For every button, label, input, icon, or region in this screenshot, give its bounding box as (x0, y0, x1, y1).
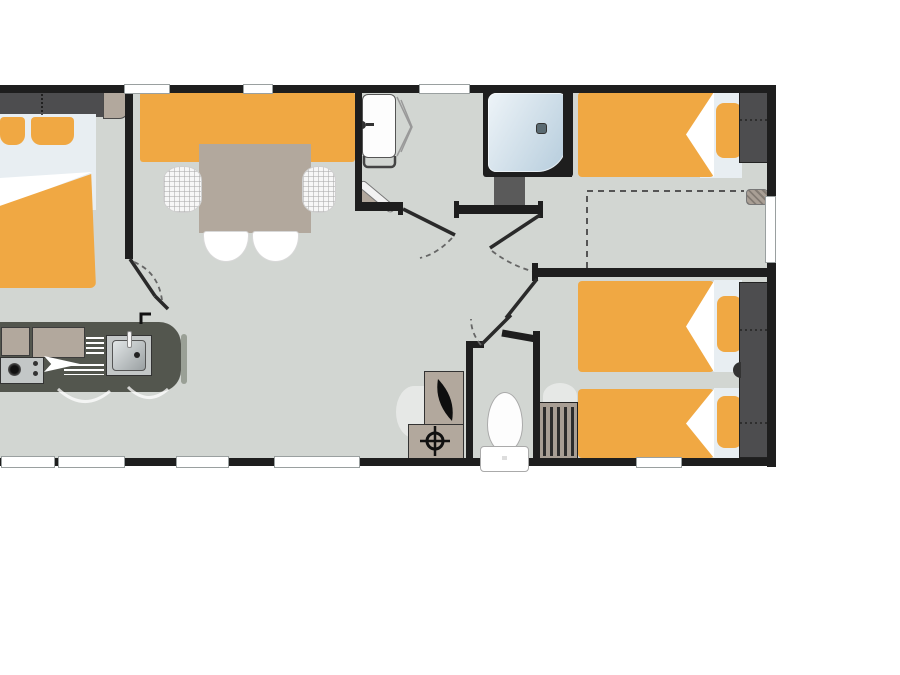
toilet-bowl (487, 392, 523, 452)
floor-plan-canvas (0, 0, 900, 675)
shower-tray (488, 93, 567, 172)
master-pillow-right (31, 117, 74, 145)
hob-knob-1 (33, 361, 38, 366)
vent-box (408, 424, 464, 460)
drainer-lower (64, 364, 104, 375)
storage-column (494, 177, 525, 207)
toilet-flush-button (502, 456, 507, 460)
wall-cap-2 (454, 201, 459, 218)
wicker-chair-left (163, 166, 202, 213)
window-top-living (124, 84, 170, 94)
window-top-bathroom-2 (419, 84, 470, 94)
window-bottom-bedroom3 (636, 457, 682, 468)
window-bottom-2 (58, 456, 125, 468)
wall-cap-3 (538, 201, 543, 218)
kitchen-cabinet-2 (32, 327, 85, 358)
wall-top (0, 85, 775, 93)
window-right-bedroom2 (765, 196, 776, 263)
water-heater (424, 371, 464, 426)
bed2-wardrobe (739, 91, 768, 163)
dining-table (199, 144, 311, 233)
drainer-upper (86, 337, 104, 357)
wall-wc-left (466, 341, 473, 461)
worktop-end-handle (181, 334, 187, 384)
wall-shower-room-bottom (355, 202, 403, 211)
wall-cap-4 (532, 263, 538, 281)
wall-wc-right (533, 331, 540, 461)
washbasin (362, 94, 396, 158)
window-top-bathroom-1 (243, 84, 273, 94)
wall-right (767, 85, 776, 467)
wicker-chair-right (302, 166, 336, 213)
wall-bedrooms-divider (534, 268, 775, 277)
sink-faucet (127, 331, 132, 348)
hob-burner (8, 363, 21, 376)
window-bottom-entrance (274, 456, 360, 468)
wall-shower-room-left (355, 88, 362, 206)
window-bottom-1 (1, 456, 55, 468)
wall-wc-left-stub (466, 341, 484, 348)
sink-drain-dot (134, 352, 140, 358)
bed3-wardrobe (739, 282, 768, 458)
wall-shower-right (563, 85, 572, 177)
hob-knob-2 (33, 371, 38, 376)
master-pillow-left (0, 117, 25, 145)
radiator-fins (543, 407, 574, 456)
window-bottom-3 (176, 456, 229, 468)
wall-master-partition (125, 88, 133, 259)
wall-cap-1 (398, 202, 403, 215)
wall-hall (456, 205, 542, 214)
basin-faucet-spout (366, 123, 374, 126)
shower-drain (536, 123, 547, 134)
kitchen-cabinet-1 (1, 327, 30, 356)
